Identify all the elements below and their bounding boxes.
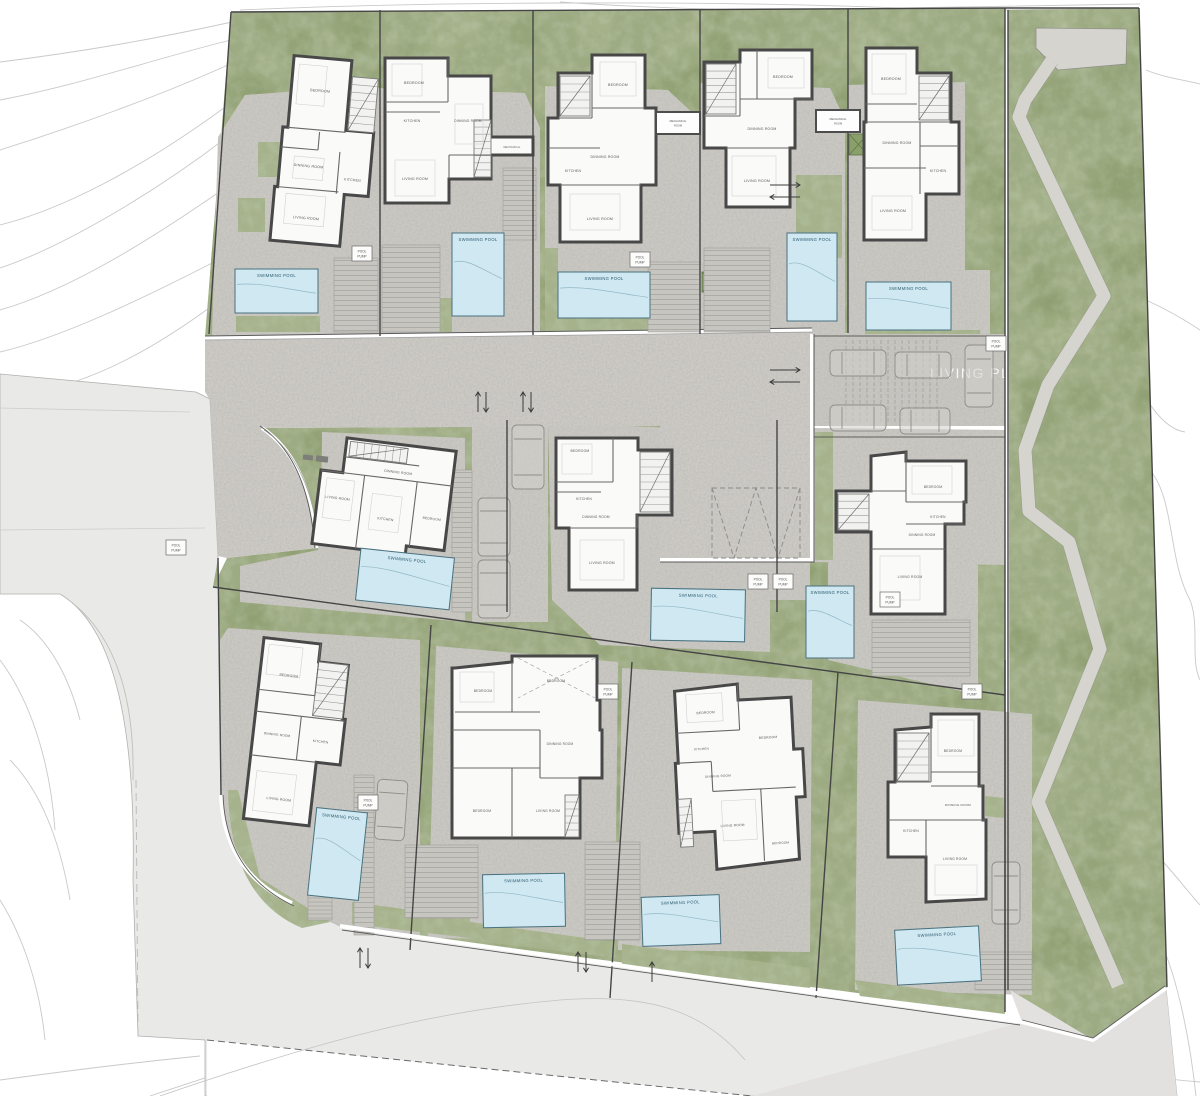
svg-text:SWIMMING POOL: SWIMMING POOL bbox=[792, 237, 831, 242]
svg-text:BEDROOM: BEDROOM bbox=[608, 83, 628, 87]
svg-text:POOL: POOL bbox=[636, 256, 645, 260]
svg-text:POOL: POOL bbox=[754, 578, 763, 582]
svg-text:PUMP: PUMP bbox=[357, 255, 366, 259]
svg-text:ROOM: ROOM bbox=[834, 122, 842, 126]
svg-text:POOL: POOL bbox=[358, 250, 367, 254]
svg-text:ROOM: ROOM bbox=[674, 124, 682, 128]
svg-text:SWIMMING POOL: SWIMMING POOL bbox=[584, 276, 623, 281]
svg-text:SWIMMING POOL: SWIMMING POOL bbox=[679, 593, 718, 599]
svg-text:DINNING ROOM: DINNING ROOM bbox=[882, 141, 911, 145]
svg-text:BEDROOM: BEDROOM bbox=[773, 75, 793, 79]
svg-text:DINNING ROOM: DINNING ROOM bbox=[454, 119, 482, 123]
svg-text:MECHANICAL: MECHANICAL bbox=[669, 119, 687, 123]
svg-text:KITCHEN: KITCHEN bbox=[576, 497, 592, 501]
svg-text:PUMP: PUMP bbox=[753, 583, 762, 587]
svg-text:BEDROOM: BEDROOM bbox=[404, 81, 424, 85]
svg-text:BEDROOM: BEDROOM bbox=[571, 449, 590, 453]
svg-text:BEDROOM: BEDROOM bbox=[547, 679, 565, 683]
svg-text:DINNING ROOM: DINNING ROOM bbox=[590, 155, 619, 159]
svg-text:PUMP: PUMP bbox=[363, 804, 372, 808]
svg-text:POOL: POOL bbox=[992, 340, 1001, 344]
svg-text:SWIMMING POOL: SWIMMING POOL bbox=[889, 286, 928, 291]
svg-text:MECHANICAL: MECHANICAL bbox=[503, 146, 521, 149]
svg-text:KITCHEN: KITCHEN bbox=[930, 169, 947, 173]
svg-text:BEDROOM: BEDROOM bbox=[474, 689, 492, 693]
svg-text:LIVING ROOM: LIVING ROOM bbox=[402, 177, 428, 181]
svg-text:DINNING ROOM: DINNING ROOM bbox=[945, 803, 971, 807]
svg-text:LIVING ROOM: LIVING ROOM bbox=[880, 209, 906, 213]
svg-text:DINNING ROOM: DINNING ROOM bbox=[547, 742, 574, 746]
svg-text:LIVING ROOM: LIVING ROOM bbox=[589, 561, 615, 565]
svg-text:POOL: POOL bbox=[886, 596, 895, 600]
svg-text:SWIMMING POOL: SWIMMING POOL bbox=[504, 878, 543, 884]
svg-text:BEDROOM: BEDROOM bbox=[881, 77, 901, 81]
svg-text:PUMP: PUMP bbox=[967, 693, 976, 697]
svg-text:PUMP: PUMP bbox=[991, 345, 1000, 349]
svg-text:PUMP: PUMP bbox=[171, 549, 180, 553]
svg-text:POOL: POOL bbox=[779, 578, 788, 582]
svg-text:KITCHEN: KITCHEN bbox=[930, 515, 946, 519]
svg-text:LIVING ROOM: LIVING ROOM bbox=[587, 217, 613, 221]
svg-text:DINNING ROOM: DINNING ROOM bbox=[582, 515, 610, 519]
svg-text:LIVING ROOM: LIVING ROOM bbox=[744, 179, 770, 183]
svg-text:BEDROOM: BEDROOM bbox=[924, 485, 942, 489]
svg-text:PUMP: PUMP bbox=[635, 261, 644, 265]
svg-text:POOL: POOL bbox=[172, 544, 181, 548]
svg-text:KITCHEN: KITCHEN bbox=[565, 169, 582, 173]
svg-text:MECHANICAL: MECHANICAL bbox=[829, 117, 847, 121]
svg-text:DINNING ROOM: DINNING ROOM bbox=[909, 533, 936, 537]
svg-text:DINNING ROOM: DINNING ROOM bbox=[747, 127, 776, 131]
svg-text:LIVING ROOM: LIVING ROOM bbox=[943, 857, 967, 861]
svg-text:PUMP: PUMP bbox=[885, 601, 894, 605]
svg-text:SWIMMING POOL: SWIMMING POOL bbox=[257, 273, 296, 278]
svg-text:BEDROOM: BEDROOM bbox=[473, 809, 491, 813]
svg-text:LIVING ROOM: LIVING ROOM bbox=[898, 575, 923, 579]
svg-text:BEDROOM: BEDROOM bbox=[944, 749, 962, 753]
svg-text:KITCHEN: KITCHEN bbox=[404, 119, 421, 123]
svg-text:PUMP: PUMP bbox=[603, 693, 612, 697]
svg-text:POOL: POOL bbox=[364, 799, 373, 803]
svg-text:SWIMMING POOL: SWIMMING POOL bbox=[810, 590, 849, 595]
svg-text:POOL: POOL bbox=[968, 688, 977, 692]
svg-text:LIVING ROOM: LIVING ROOM bbox=[536, 809, 560, 813]
svg-text:POOL: POOL bbox=[604, 688, 613, 692]
svg-text:KITCHEN: KITCHEN bbox=[694, 747, 709, 752]
svg-text:SWIMMING POOL: SWIMMING POOL bbox=[458, 237, 497, 242]
svg-text:KITCHEN: KITCHEN bbox=[903, 829, 919, 833]
svg-text:PUMP: PUMP bbox=[778, 583, 787, 587]
